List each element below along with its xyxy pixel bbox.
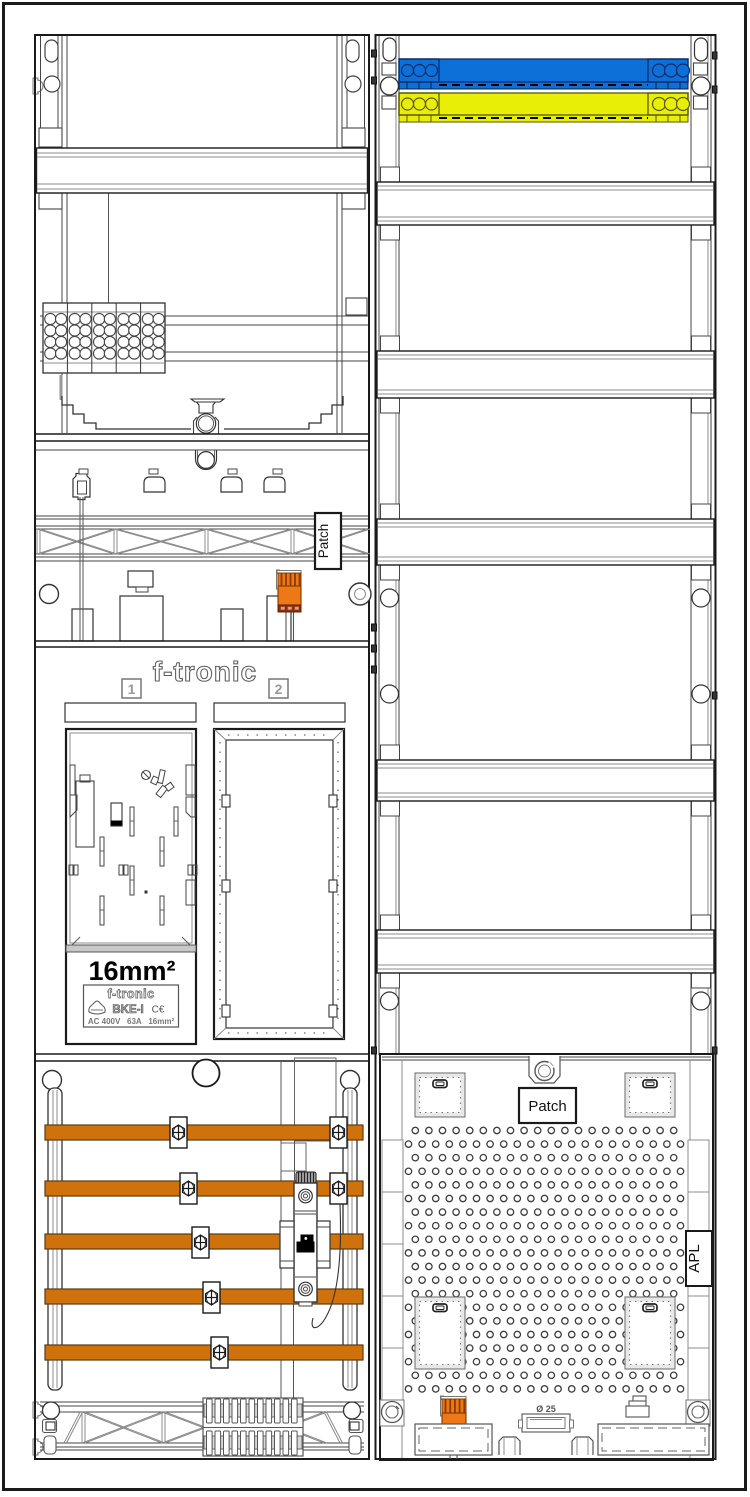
svg-text:BKE-I: BKE-I [112, 1004, 143, 1016]
svg-text:Patch: Patch [528, 1098, 566, 1115]
svg-text:16mm²: 16mm² [88, 956, 175, 986]
svg-text:1: 1 [128, 681, 136, 697]
svg-text:Ø 25: Ø 25 [536, 1404, 556, 1414]
svg-text:f-tronic: f-tronic [107, 987, 154, 1001]
svg-text:f-tronic: f-tronic [153, 656, 257, 687]
svg-text:2: 2 [275, 681, 283, 697]
svg-text:Patch: Patch [316, 524, 331, 559]
svg-text:APL: APL [686, 1244, 703, 1272]
svg-text:C€: C€ [152, 1005, 165, 1016]
svg-text:AC 400V 63A 16mm²: AC 400V 63A 16mm² [88, 1017, 175, 1026]
